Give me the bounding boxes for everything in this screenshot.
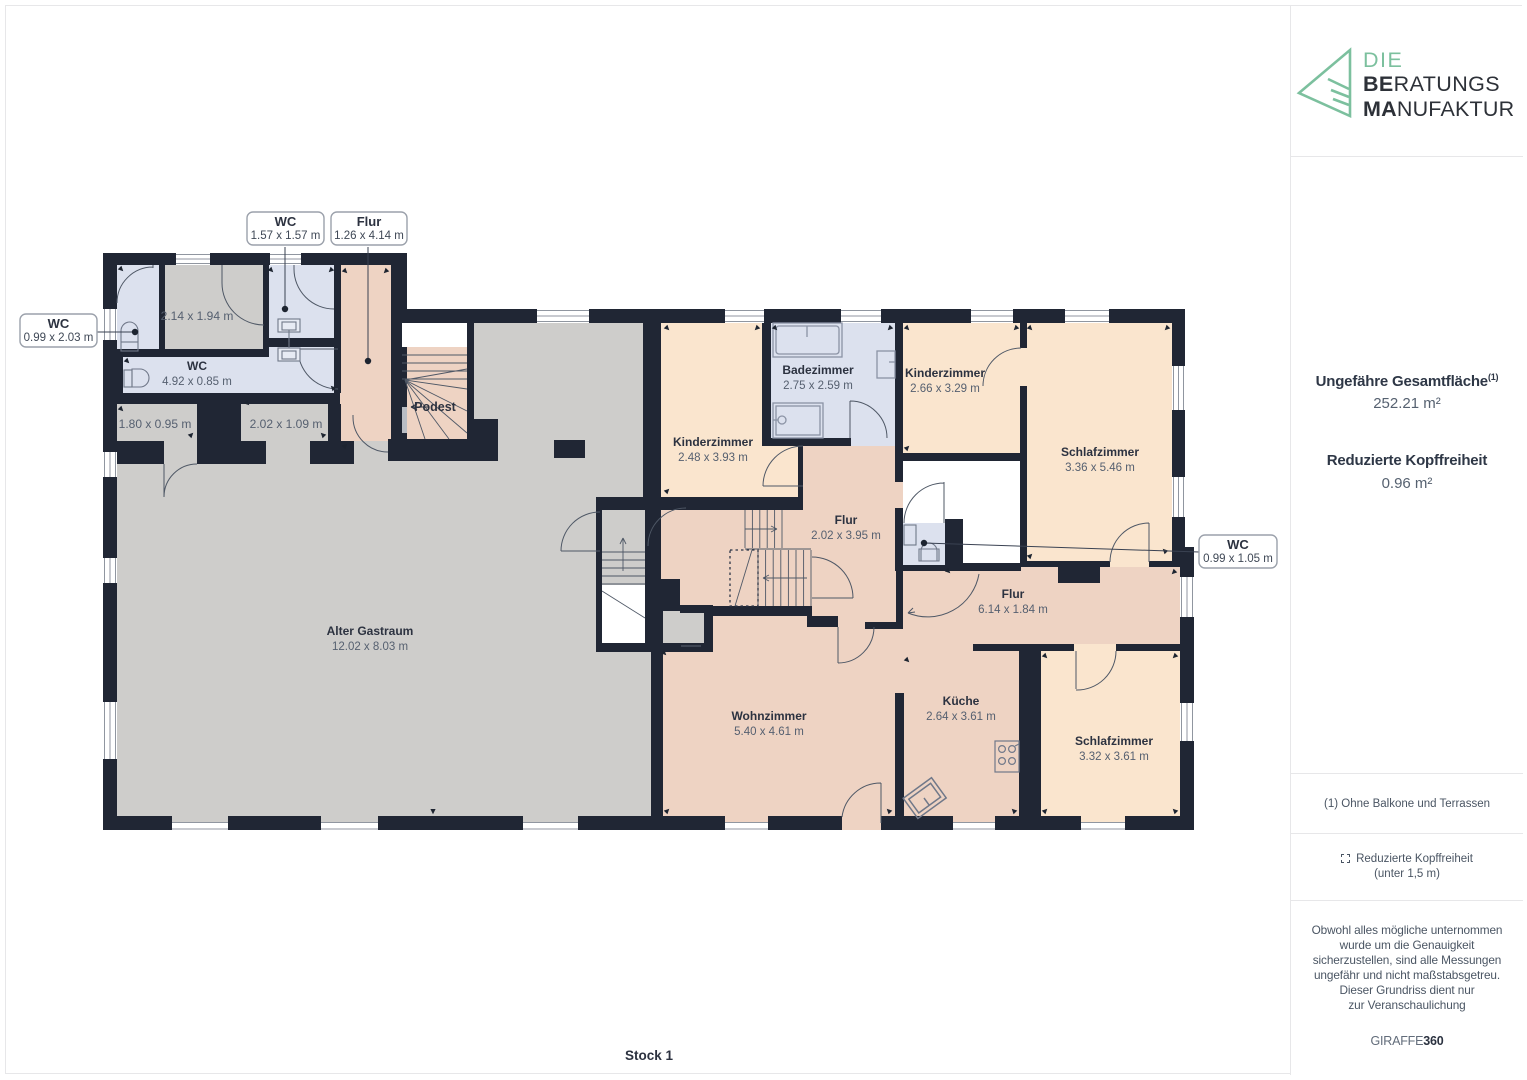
svg-text:1.80 x 0.95 m: 1.80 x 0.95 m — [119, 417, 192, 431]
svg-text:3.36 x 5.46 m: 3.36 x 5.46 m — [1065, 462, 1135, 474]
svg-text:0.99 x 2.03 m: 0.99 x 2.03 m — [24, 332, 94, 344]
svg-text:WC: WC — [187, 359, 207, 373]
svg-text:Flur: Flur — [357, 214, 382, 229]
svg-text:2.66 x 3.29 m: 2.66 x 3.29 m — [910, 383, 980, 395]
svg-text:Flur: Flur — [835, 513, 858, 527]
svg-text:MANUFAKTUR: MANUFAKTUR — [1363, 97, 1514, 121]
svg-text:1.57 x 1.57 m: 1.57 x 1.57 m — [251, 230, 321, 242]
svg-text:Badezimmer: Badezimmer — [782, 363, 854, 377]
svg-text:Stock 1: Stock 1 — [625, 1048, 674, 1063]
svg-text:Schlafzimmer: Schlafzimmer — [1075, 734, 1153, 748]
svg-text:12.02 x 8.03 m: 12.02 x 8.03 m — [332, 641, 408, 653]
svg-text:4.92 x 0.85 m: 4.92 x 0.85 m — [162, 376, 232, 388]
svg-text:WC: WC — [48, 316, 70, 331]
svg-text:1.26 x 4.14 m: 1.26 x 4.14 m — [334, 230, 404, 242]
svg-text:Schlafzimmer: Schlafzimmer — [1061, 445, 1139, 459]
svg-text:3.32 x 3.61 m: 3.32 x 3.61 m — [1079, 751, 1149, 763]
svg-text:Alter Gastraum: Alter Gastraum — [327, 624, 414, 638]
svg-text:6.14 x 1.84 m: 6.14 x 1.84 m — [978, 604, 1048, 616]
svg-text:2.75 x 2.59 m: 2.75 x 2.59 m — [783, 380, 853, 392]
svg-text:Wohnzimmer: Wohnzimmer — [731, 709, 806, 723]
svg-text:0.99 x 1.05 m: 0.99 x 1.05 m — [1203, 553, 1273, 565]
svg-text:BERATUNGS: BERATUNGS — [1363, 72, 1500, 96]
svg-text:Küche: Küche — [943, 694, 980, 708]
svg-text:2.64 x 3.61 m: 2.64 x 3.61 m — [926, 711, 996, 723]
svg-text:Flur: Flur — [1002, 587, 1025, 601]
svg-text:WC: WC — [275, 214, 297, 229]
svg-text:2.14 x 1.94 m: 2.14 x 1.94 m — [161, 309, 234, 323]
svg-text:Kinderzimmer: Kinderzimmer — [673, 435, 753, 449]
svg-text:5.40 x 4.61 m: 5.40 x 4.61 m — [734, 726, 804, 738]
svg-text:2.48 x 3.93 m: 2.48 x 3.93 m — [678, 452, 748, 464]
svg-text:2.02 x 3.95 m: 2.02 x 3.95 m — [811, 530, 881, 542]
svg-text:DIE: DIE — [1363, 48, 1403, 72]
svg-text:Kinderzimmer: Kinderzimmer — [905, 366, 985, 380]
svg-text:2.02 x 1.09 m: 2.02 x 1.09 m — [250, 417, 323, 431]
svg-text:WC: WC — [1227, 537, 1249, 552]
